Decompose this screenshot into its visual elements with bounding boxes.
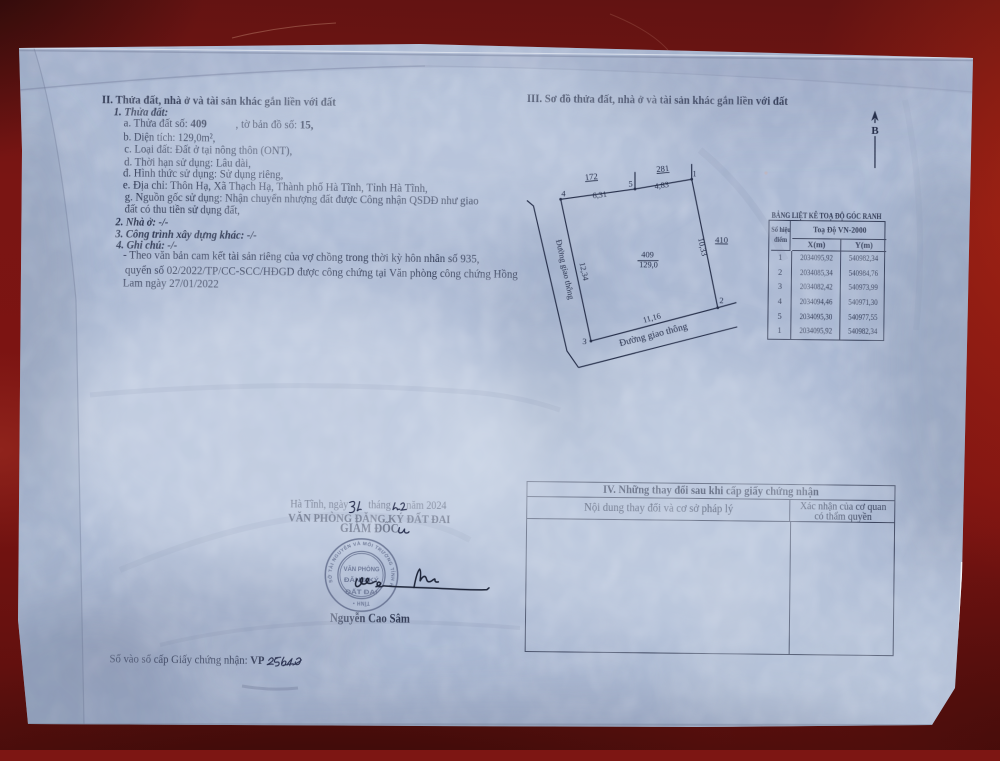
svg-text:12,34: 12,34 bbox=[578, 262, 591, 282]
svg-text:6,31: 6,31 bbox=[592, 190, 607, 201]
svg-text:1: 1 bbox=[693, 169, 697, 178]
svg-text:2: 2 bbox=[719, 295, 723, 305]
svg-text:5: 5 bbox=[628, 178, 632, 188]
svg-text:10,33: 10,33 bbox=[696, 237, 709, 257]
svg-text:3: 3 bbox=[582, 336, 586, 346]
svg-text:172: 172 bbox=[584, 171, 598, 182]
svg-text:ĐẤT ĐAI: ĐẤT ĐAI bbox=[345, 586, 377, 596]
svg-text:Đường giao thông: Đường giao thông bbox=[554, 239, 576, 301]
svg-text:129,0: 129,0 bbox=[639, 260, 658, 269]
svg-text:4: 4 bbox=[561, 188, 566, 198]
svg-text:Đường giao thông: Đường giao thông bbox=[618, 321, 689, 349]
svg-text:B: B bbox=[871, 125, 879, 137]
svg-text:409: 409 bbox=[641, 250, 654, 259]
svg-text:TĨNH •: TĨNH • bbox=[353, 600, 370, 607]
svg-text:281: 281 bbox=[656, 163, 670, 174]
svg-text:4,83: 4,83 bbox=[654, 180, 669, 191]
svg-text:VĂN PHÒNG: VĂN PHÒNG bbox=[344, 564, 380, 573]
svg-text:410: 410 bbox=[715, 234, 728, 244]
